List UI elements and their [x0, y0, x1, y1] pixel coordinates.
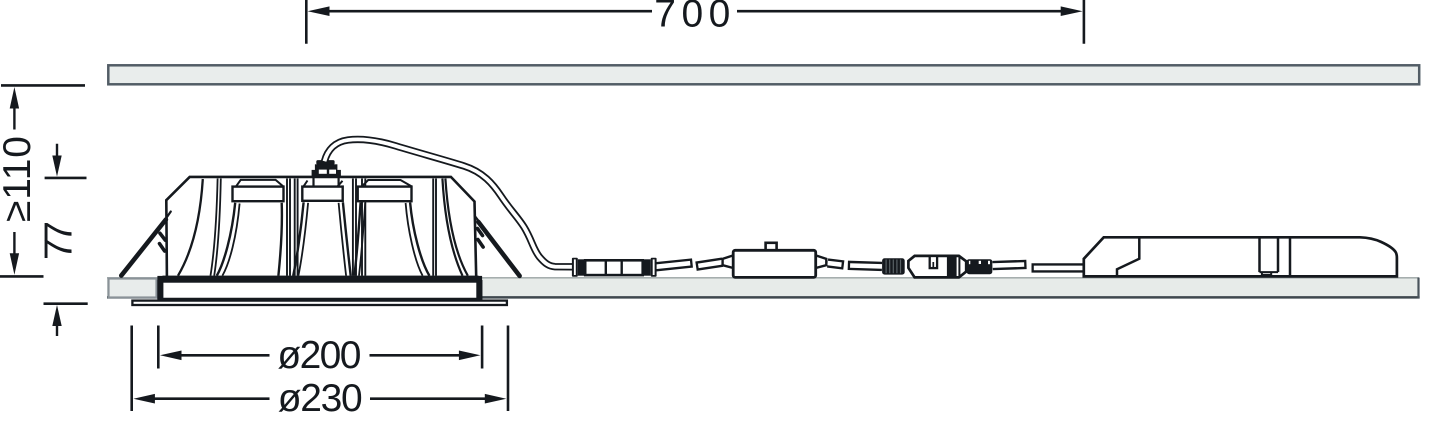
svg-text:≥110: ≥110: [0, 136, 39, 222]
svg-text:77: 77: [37, 221, 80, 260]
svg-text:700: 700: [654, 0, 730, 36]
svg-text:ø200: ø200: [277, 334, 361, 377]
svg-text:ø230: ø230: [278, 377, 363, 420]
